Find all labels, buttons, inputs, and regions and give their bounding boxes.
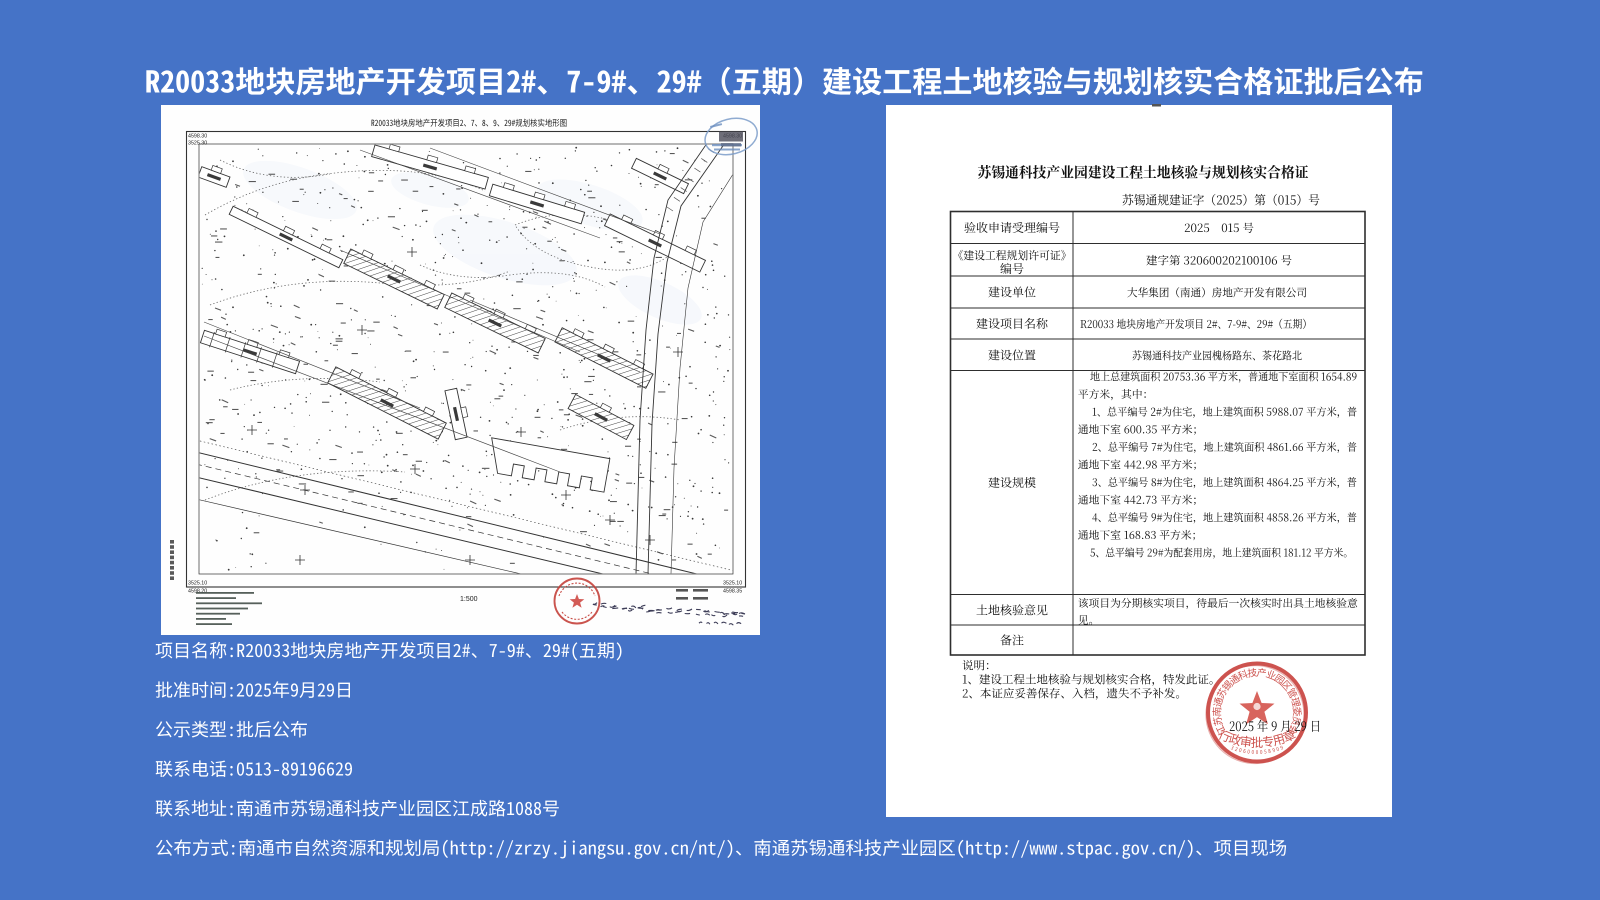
svg-text:3525.30: 3525.30 [188, 141, 207, 147]
svg-text:1:500: 1:500 [460, 596, 478, 603]
svg-text:3525.10: 3525.10 [723, 581, 742, 587]
svg-text:3525.10: 3525.10 [188, 581, 207, 587]
svg-text:4598.35: 4598.35 [723, 589, 742, 595]
svg-text:4598.30: 4598.30 [188, 134, 207, 140]
